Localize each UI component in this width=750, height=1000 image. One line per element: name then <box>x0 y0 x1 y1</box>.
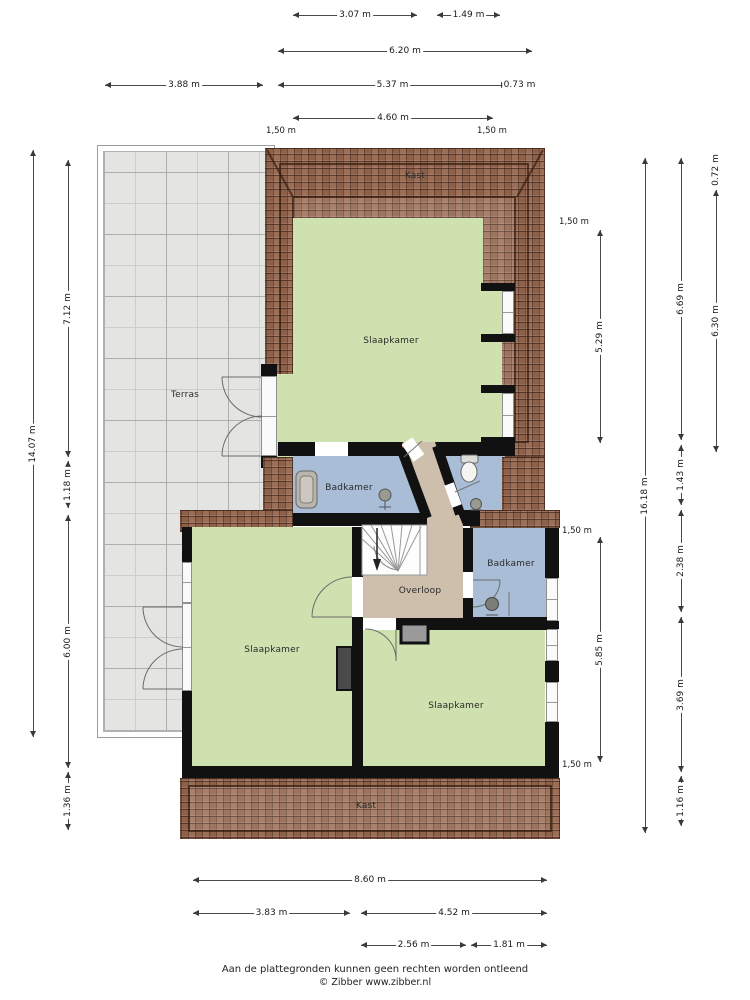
wall-stub-2 <box>481 334 515 342</box>
dimension-arrowhead <box>65 160 71 166</box>
door-gap-badkamer-right[interactable] <box>463 572 473 598</box>
dimension-arrowhead <box>713 190 719 196</box>
dimension-label: 1.36 m <box>63 783 73 819</box>
dimension-label: 3.83 m <box>254 908 290 918</box>
wall-right-4 <box>545 722 559 767</box>
wall-mid-vert-b <box>352 617 363 767</box>
dimension-arrowhead <box>713 446 719 452</box>
dimension-label: 6.00 m <box>63 624 73 660</box>
dimension-label: 0.73 m <box>502 80 538 90</box>
height-marker: 1,50 m <box>559 217 589 227</box>
dimension-label: 0.72 m <box>711 152 721 188</box>
wall-overloop-bottom <box>396 617 547 630</box>
dimension-label: 5.29 m <box>595 319 605 355</box>
dimension-arrowhead <box>597 537 603 543</box>
height-marker: 1,50 m <box>266 126 296 136</box>
door-gap-slaapkamer-left[interactable] <box>352 577 363 617</box>
dimension-arrowhead <box>257 82 263 88</box>
dimension-arrowhead <box>361 910 367 916</box>
dimension-label: 5.85 m <box>595 632 605 668</box>
dimension-arrowhead <box>494 12 500 18</box>
dimension-arrowhead <box>678 510 684 516</box>
room-label-kast-bottom: Kast <box>356 801 376 811</box>
footer-credit: © Zibber www.zibber.nl <box>0 977 750 988</box>
dimension-arrowhead <box>65 824 71 830</box>
dimension-arrowhead <box>678 606 684 612</box>
dimension-arrowhead <box>30 731 36 737</box>
wall-toproom-bottom-a <box>278 442 315 456</box>
dimension-label: 3.69 m <box>676 677 686 713</box>
door-gap-slaapkamer-right[interactable] <box>363 617 396 630</box>
wall-badkamer-right-left-a <box>463 528 473 572</box>
room-slaapkamer-right <box>363 629 545 767</box>
dimension-label: 4.60 m <box>375 113 411 123</box>
dimension-arrowhead <box>678 445 684 451</box>
height-marker: 1,50 m <box>477 126 507 136</box>
dimension-label: 1.16 m <box>676 783 686 819</box>
dimension-arrowhead <box>642 827 648 833</box>
dimension-arrowhead <box>541 942 547 948</box>
dimension-arrowhead <box>541 877 547 883</box>
dimension-label: 6.69 m <box>676 281 686 317</box>
dimension-label: 1.18 m <box>63 467 73 503</box>
dimension-label: 1.49 m <box>451 10 487 20</box>
floorplan: KastSlaapkamerTerrasBadkamerBadkamerOver… <box>0 0 750 1000</box>
height-marker: 1,50 m <box>562 526 592 536</box>
dimension-arrowhead <box>471 942 477 948</box>
wall-mid-vert-a <box>352 527 363 577</box>
terrace-french-door-lower[interactable] <box>182 603 192 691</box>
dimension-arrowhead <box>105 82 111 88</box>
room-slaapkamer-top <box>293 218 483 442</box>
dimension-arrowhead <box>487 115 493 121</box>
dimension-arrowhead <box>344 910 350 916</box>
stair-arrow-head <box>373 559 381 571</box>
window-right-3 <box>546 682 558 722</box>
dimension-arrowhead <box>460 942 466 948</box>
dimension-label: 3.07 m <box>337 10 373 20</box>
dimension-arrowhead <box>278 48 284 54</box>
dimension-arrowhead <box>678 158 684 164</box>
wall-left-1 <box>182 527 192 562</box>
room-label-badkamer-right: Badkamer <box>487 559 535 569</box>
dimension-arrowhead <box>193 910 199 916</box>
wall-bottom <box>182 766 559 778</box>
window-right-1 <box>546 578 558 621</box>
roof-patch-right-col <box>502 457 545 512</box>
dimension-label: 1.43 m <box>676 457 686 493</box>
dimension-arrowhead <box>30 150 36 156</box>
room-label-badkamer-left: Badkamer <box>325 483 373 493</box>
door-gap-badkamer-left[interactable] <box>315 442 348 456</box>
wall-terrace-door-top-stub <box>261 364 277 376</box>
dimension-arrowhead <box>293 12 299 18</box>
room-label-overloop: Overloop <box>399 586 441 596</box>
dimension-arrowhead <box>361 942 367 948</box>
wall-stub-1 <box>481 283 515 291</box>
dimension-arrowhead <box>642 158 648 164</box>
dimension-arrowhead <box>678 776 684 782</box>
window-top-room-1 <box>502 291 514 334</box>
wall-right-3 <box>545 661 559 682</box>
dimension-arrowhead <box>597 230 603 236</box>
dimension-label: 5.37 m <box>375 80 411 90</box>
dimension-label: 16.18 m <box>640 475 650 516</box>
room-label-slaapkamer-left: Slaapkamer <box>244 645 300 655</box>
terrace-french-door-upper[interactable] <box>261 376 277 456</box>
room-label-terras: Terras <box>171 390 199 400</box>
wall-toproom-bottom-c <box>435 442 515 456</box>
dimension-label: 14.07 m <box>28 423 38 464</box>
dimension-label: 2.38 m <box>676 543 686 579</box>
dimension-arrowhead <box>65 515 71 521</box>
window-top-room-2 <box>502 393 514 438</box>
stair-rail <box>374 546 399 570</box>
dimension-arrowhead <box>437 12 443 18</box>
room-label-slaapkamer-right: Slaapkamer <box>428 701 484 711</box>
window-right-2 <box>546 629 558 661</box>
dimension-arrowhead <box>65 772 71 778</box>
dimension-arrowhead <box>541 910 547 916</box>
window-left-room <box>182 562 192 603</box>
dimension-arrowhead <box>293 115 299 121</box>
wall-badkamer-left-bottom <box>278 513 433 526</box>
dimension-arrowhead <box>526 48 532 54</box>
dimension-arrowhead <box>597 756 603 762</box>
dimension-arrowhead <box>678 766 684 772</box>
dimension-arrowhead <box>278 82 284 88</box>
dimension-label: 6.30 m <box>711 303 721 339</box>
dimension-label: 4.52 m <box>436 908 472 918</box>
wall-stub-3 <box>481 385 515 393</box>
dimension-arrowhead <box>65 451 71 457</box>
footer-disclaimer: Aan de plattegronden kunnen geen rechten… <box>0 964 750 975</box>
dimension-label: 7.12 m <box>63 291 73 327</box>
room-badkamer-right-lower <box>472 528 547 618</box>
dimension-arrowhead <box>678 499 684 505</box>
dimension-label: 6.20 m <box>387 46 423 56</box>
dimension-arrowhead <box>65 461 71 467</box>
wall-right-1 <box>545 528 559 578</box>
wall-left-2 <box>182 691 192 767</box>
staircase[interactable] <box>362 525 427 575</box>
dimension-label: 1.81 m <box>491 940 527 950</box>
stair-treads <box>362 525 421 575</box>
dimension-arrowhead <box>65 762 71 768</box>
dimension-arrowhead <box>678 617 684 623</box>
roof-band-right <box>470 510 560 528</box>
dimension-label: 3.88 m <box>166 80 202 90</box>
dimension-label: 8.60 m <box>352 875 388 885</box>
dimension-arrowhead <box>597 437 603 443</box>
wall-badkamer-right-left-b <box>463 598 473 619</box>
wall-toproom-bottom-b <box>348 442 402 456</box>
room-badkamer-right-upper <box>437 456 505 512</box>
room-label-kast-top: Kast <box>405 171 425 181</box>
wall-badkamer-right-upper-bottom <box>455 510 480 526</box>
dimension-arrowhead <box>678 820 684 826</box>
height-marker: 1,50 m <box>562 760 592 770</box>
dimension-label: 2.56 m <box>396 940 432 950</box>
dimension-arrowhead <box>678 434 684 440</box>
room-slaapkamer-top-bay <box>483 283 502 446</box>
wall-right-2 <box>545 621 559 629</box>
room-label-slaapkamer-top: Slaapkamer <box>363 336 419 346</box>
dimension-arrowhead <box>193 877 199 883</box>
dimension-arrowhead <box>411 12 417 18</box>
dimension-arrowhead <box>65 502 71 508</box>
